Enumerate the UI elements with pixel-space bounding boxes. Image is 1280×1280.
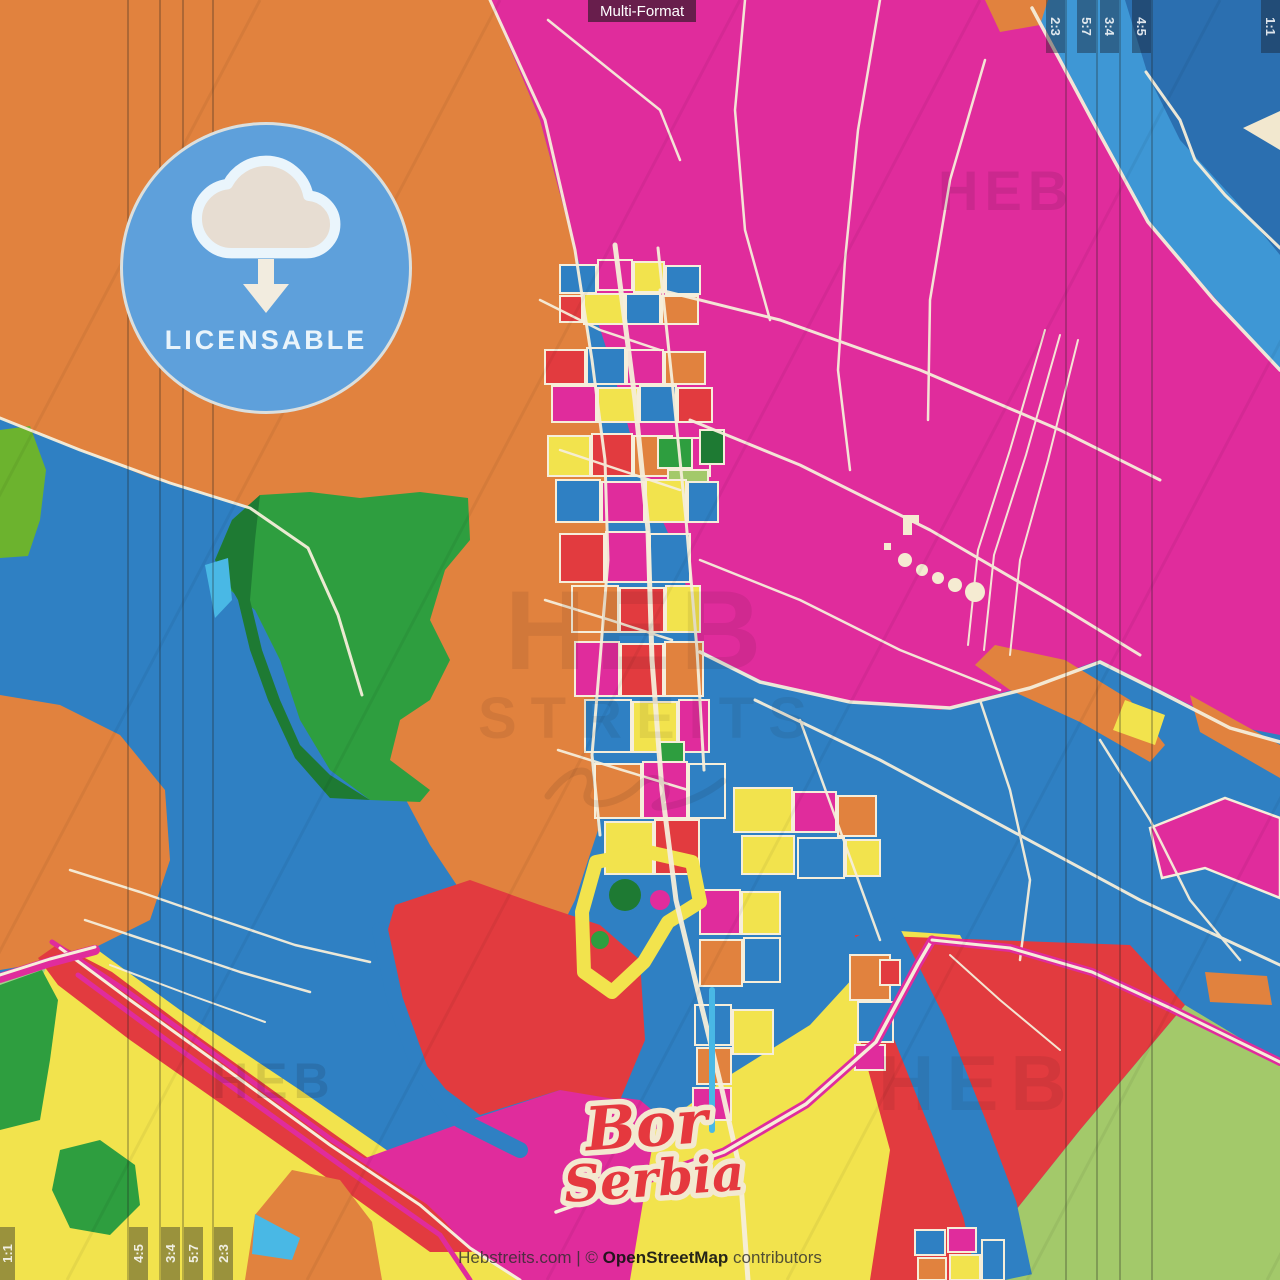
aspect-ratio-marker-4-5-top: 4:5 xyxy=(1132,0,1151,53)
aspect-ratio-label: 5:7 xyxy=(1079,17,1094,36)
crop-line-3-4-right xyxy=(1119,0,1121,1280)
credits-osm: OpenStreetMap xyxy=(603,1248,729,1267)
aspect-ratio-label: 2:3 xyxy=(1048,17,1063,36)
aspect-ratio-marker-5-7-top: 5:7 xyxy=(1077,0,1096,53)
format-badge: Multi-Format xyxy=(588,0,696,22)
aspect-ratio-label: 4:5 xyxy=(1134,17,1149,36)
crop-line-5-7-right xyxy=(1096,0,1098,1280)
map-poster-bor-serbia: Bor Serbia HEB HEB STREITS HEB HEB 2:3 5… xyxy=(0,0,1280,1280)
format-badge-label: Multi-Format xyxy=(600,3,684,20)
aspect-ratio-marker-1-1-top: 1:1 xyxy=(1261,0,1280,53)
credits-copyright: © xyxy=(585,1248,598,1267)
aspect-ratio-label: 3:4 xyxy=(1102,17,1117,36)
aspect-ratio-marker-3-4-top: 3:4 xyxy=(1100,0,1119,53)
aspect-ratio-marker-2-3-top: 2:3 xyxy=(1046,0,1065,53)
licensable-label: LICENSABLE xyxy=(165,325,368,356)
crop-line-2-3-right xyxy=(1065,0,1067,1280)
credits-suffix: contributors xyxy=(733,1248,822,1267)
place-country: Serbia xyxy=(562,1143,746,1214)
credits-line: Hebstreits.com | © OpenStreetMap contrib… xyxy=(0,1248,1280,1268)
credits-site: Hebstreits.com xyxy=(458,1248,571,1267)
licensable-badge: LICENSABLE xyxy=(120,122,412,414)
aspect-ratio-label: 1:1 xyxy=(1263,17,1278,36)
cloud-icon xyxy=(191,149,341,265)
crop-line-4-5-right xyxy=(1151,0,1153,1280)
download-arrow-icon xyxy=(243,259,289,315)
crop-line-4-5-left xyxy=(127,0,129,1280)
credits-divider: | xyxy=(576,1248,580,1267)
